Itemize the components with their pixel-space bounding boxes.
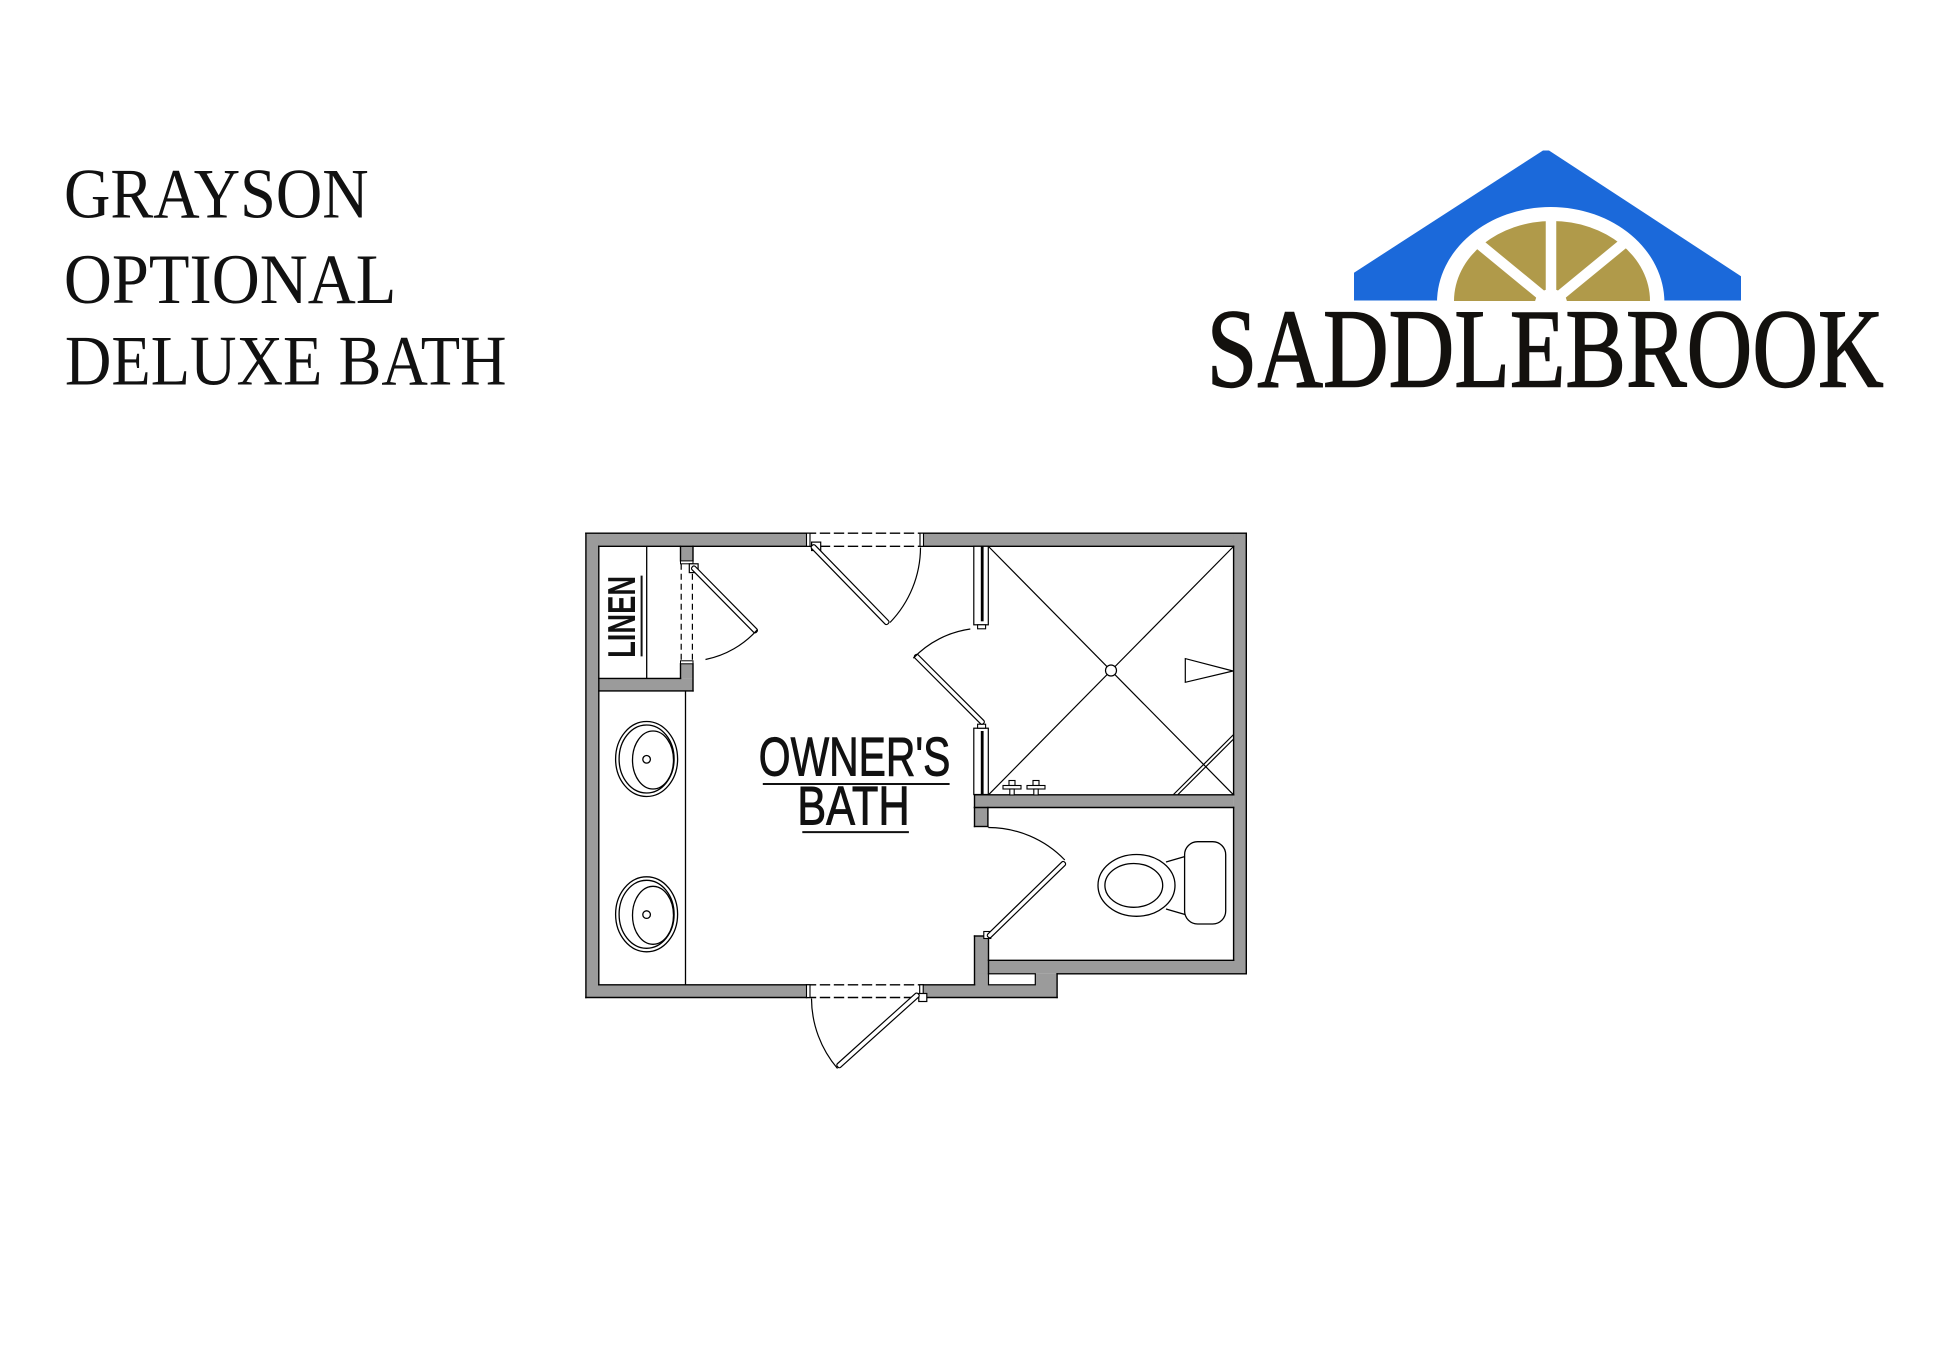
svg-text:OPTIONAL: OPTIONAL — [64, 240, 397, 318]
svg-text:DELUXE BATH: DELUXE BATH — [65, 322, 507, 401]
svg-text:SADDLEBROOK: SADDLEBROOK — [1207, 288, 1884, 412]
svg-text:GRAYSON: GRAYSON — [64, 155, 369, 234]
svg-text:LINEN: LINEN — [602, 576, 645, 658]
svg-text:BATH: BATH — [797, 776, 910, 837]
